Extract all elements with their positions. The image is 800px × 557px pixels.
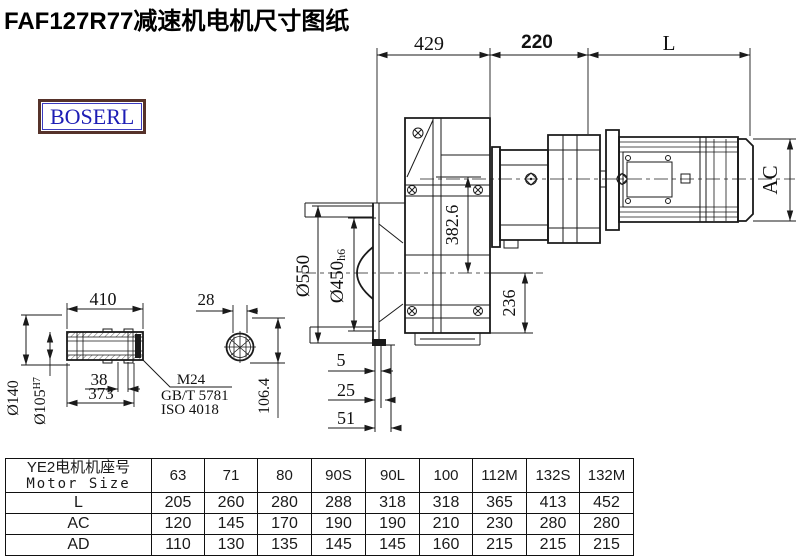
table-cell: 190 (312, 514, 366, 535)
table-cell: 160 (420, 535, 473, 556)
table-cell: 130 (205, 535, 258, 556)
row-label: AD (6, 535, 152, 556)
dim-382-label: 382.6 (442, 205, 462, 246)
col-80: 80 (258, 459, 312, 493)
table-cell: 145 (366, 535, 420, 556)
motor-size-header: YE2电机机座号 Motor Size (6, 459, 152, 493)
hollow-shaft-detail (67, 329, 256, 363)
dim-105H7-label: Ø105H7 (32, 377, 49, 425)
table-cell: 110 (152, 535, 205, 556)
table-cell: 260 (205, 493, 258, 514)
dim-25-label: 25 (337, 380, 355, 400)
input-gear-stage (492, 135, 606, 248)
table-row-AD: AD 110 130 135 145 145 160 215 215 215 (6, 535, 634, 556)
table-cell: 288 (312, 493, 366, 514)
dim-450h6-label: Ø450h6 (327, 249, 348, 303)
callout-ISO-label: ISO 4018 (161, 402, 219, 418)
col-90L: 90L (366, 459, 420, 493)
table-cell: 210 (420, 514, 473, 535)
table-cell: 413 (527, 493, 580, 514)
table-cell: 215 (580, 535, 634, 556)
table-cell: 452 (580, 493, 634, 514)
table-cell: 318 (420, 493, 473, 514)
col-132S: 132S (527, 459, 580, 493)
row-label: AC (6, 514, 152, 535)
dim-5-label: 5 (337, 350, 346, 370)
table-row-L: L 205 260 280 288 318 318 365 413 452 (6, 493, 634, 514)
table-cell: 230 (473, 514, 527, 535)
col-71: 71 (205, 459, 258, 493)
table-row-AC: AC 120 145 170 190 190 210 230 280 280 (6, 514, 634, 535)
col-132M: 132M (580, 459, 634, 493)
dim-220-label: 220 (521, 32, 553, 53)
table-cell: 280 (258, 493, 312, 514)
dim-550-label: Ø550 (293, 255, 314, 297)
motor (606, 130, 753, 230)
row-label: L (6, 493, 152, 514)
output-flange (305, 203, 405, 432)
dim-L-label: L (663, 31, 676, 55)
motor-size-header-en: Motor Size (6, 476, 151, 492)
dimension-lines (21, 48, 796, 428)
table-header-row: YE2电机机座号 Motor Size 63 71 80 90S 90L 100… (6, 459, 634, 493)
callout-M24-label: M24 (177, 372, 206, 388)
col-90S: 90S (312, 459, 366, 493)
dim-410-label: 410 (90, 289, 117, 309)
table-cell: 170 (258, 514, 312, 535)
table-cell: 215 (527, 535, 580, 556)
table-cell: 145 (205, 514, 258, 535)
table-cell: 318 (366, 493, 420, 514)
col-100: 100 (420, 459, 473, 493)
table-cell: 120 (152, 514, 205, 535)
dim-1064-label: 106.4 (256, 378, 273, 414)
table-cell: 215 (473, 535, 527, 556)
table-cell: 145 (312, 535, 366, 556)
drawing-sheet: FAF127R77减速机电机尺寸图纸 BOSERL (0, 0, 800, 557)
motor-size-header-cn: YE2电机机座号 (6, 460, 151, 476)
dim-51-label: 51 (337, 408, 355, 428)
dim-AC-label: AC (758, 165, 782, 194)
col-63: 63 (152, 459, 205, 493)
dim-140-label: Ø140 (5, 380, 22, 416)
dim-28-label: 28 (198, 290, 215, 309)
col-112M: 112M (473, 459, 527, 493)
table-cell: 365 (473, 493, 527, 514)
dim-429-label: 429 (414, 33, 444, 55)
table-cell: 280 (580, 514, 634, 535)
dim-38-label: 38 (91, 370, 108, 389)
table-cell: 190 (366, 514, 420, 535)
table-cell: 135 (258, 535, 312, 556)
dim-236-label: 236 (499, 290, 519, 317)
table-cell: 205 (152, 493, 205, 514)
table-cell: 280 (527, 514, 580, 535)
motor-size-table: YE2电机机座号 Motor Size 63 71 80 90S 90L 100… (5, 458, 634, 556)
